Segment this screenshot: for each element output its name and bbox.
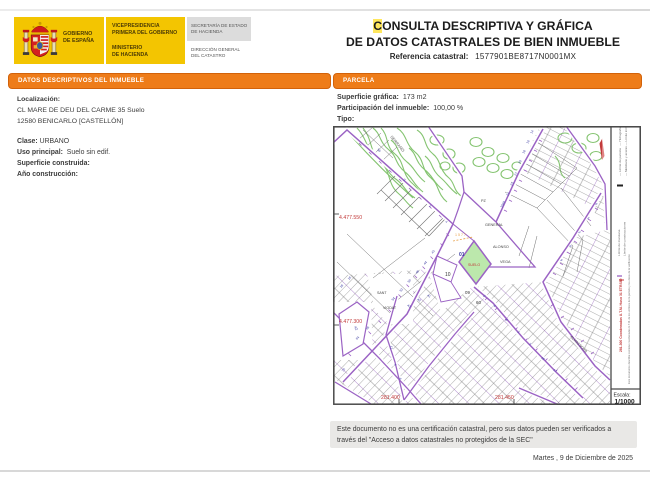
svg-text:1/1000: 1/1000: [615, 399, 636, 406]
svg-text:VIODAT: VIODAT: [383, 306, 397, 310]
svg-text:PZ: PZ: [481, 199, 487, 203]
svg-text:60: 60: [476, 300, 481, 305]
svg-text:Límite de construcciones: Límite de construcciones: [623, 221, 627, 256]
svg-text:SUELO: SUELO: [468, 263, 480, 267]
svg-text:281.300 Coordenadas U.T.M. Hus: 281.300 Coordenadas U.T.M. Huso 31 ETRS8…: [619, 278, 623, 352]
svg-text:09: 09: [465, 290, 470, 295]
svg-text:ALONSO: ALONSO: [493, 245, 509, 249]
svg-text:281.450: 281.450: [495, 395, 514, 401]
svg-text:— Límite de parcela — Hidrog: — Límite de parcela — Hidrografía: [618, 126, 622, 176]
svg-text:GENERAL: GENERAL: [485, 223, 503, 227]
svg-text:10: 10: [445, 272, 451, 278]
svg-text:01: 01: [459, 252, 465, 258]
svg-text:281.400: 281.400: [381, 395, 400, 401]
svg-text:4.477.550: 4.477.550: [339, 215, 362, 221]
svg-text:— Mobiliario y aceras — Límite: — Mobiliario y aceras — Límite inmueble: [624, 126, 628, 176]
svg-text:4.477.300: 4.477.300: [339, 319, 362, 325]
svg-text:Límite de manzana: Límite de manzana: [617, 229, 621, 256]
svg-text:VEGA: VEGA: [500, 260, 511, 264]
svg-text:SANT: SANT: [377, 291, 387, 295]
svg-text:1 5 7 7: 1 5 7 7: [455, 233, 466, 237]
svg-text:Este documento describe contie: Este documento describe contiene coorden…: [627, 254, 631, 384]
